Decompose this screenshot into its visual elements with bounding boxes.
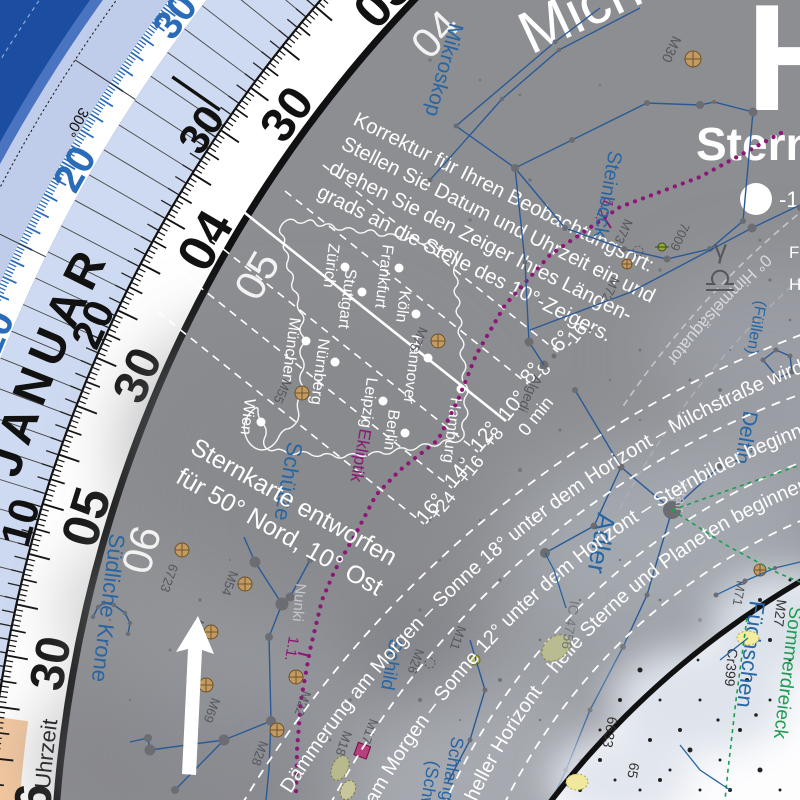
svg-text:F: F [789,243,799,262]
svg-text:65: 65 [624,761,642,779]
svg-text:-1: -1 [779,187,799,212]
svg-text:H: H [789,275,800,294]
svg-text:M27: M27 [771,599,790,628]
svg-text:Nunki: Nunki [289,583,309,623]
svg-text:γ: γ [714,234,727,264]
